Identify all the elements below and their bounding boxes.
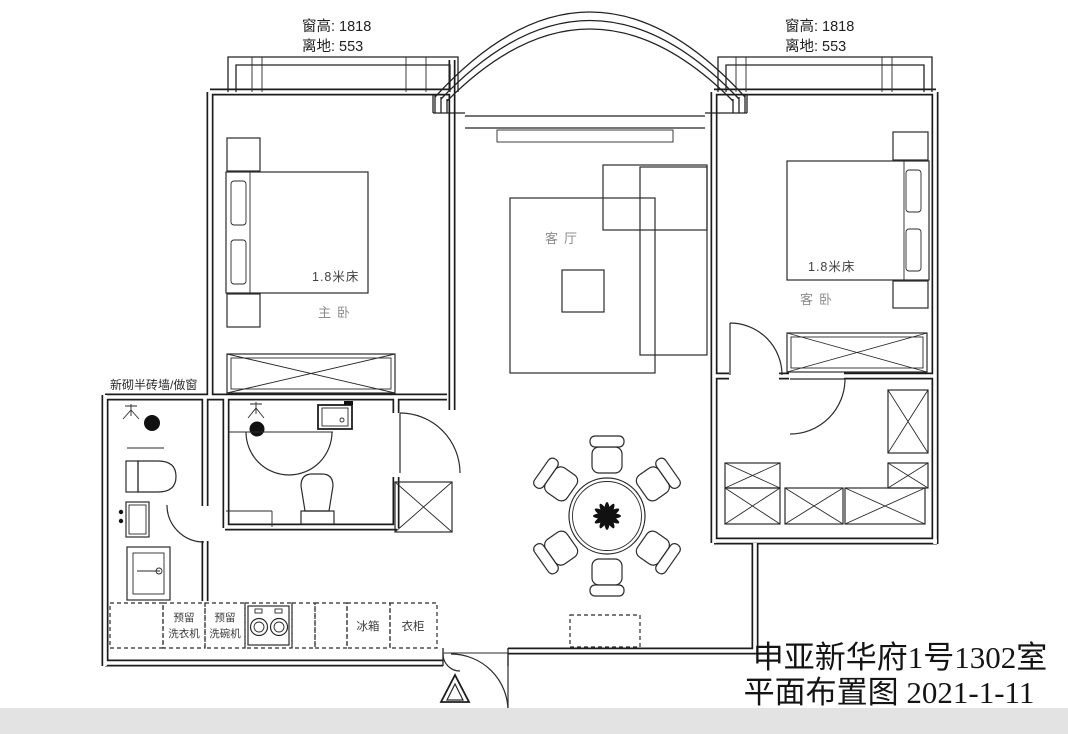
master-pillow — [231, 240, 246, 284]
hallway-cabinet-hatch — [395, 482, 452, 532]
wardrobe-hatch — [888, 390, 928, 453]
utility-toilet — [126, 461, 176, 492]
table-plant — [593, 502, 621, 530]
label-washer-2: 洗衣机 — [168, 627, 200, 640]
living-rug — [510, 198, 655, 373]
label-master-room: 主卧 — [318, 305, 356, 320]
closet-room — [725, 379, 928, 524]
label-washer-1: 预留 — [174, 611, 195, 624]
plan-title-line2: 平面布置图 2021-1-11 — [744, 675, 1035, 710]
sofa — [640, 167, 707, 355]
master-pillow — [231, 181, 246, 225]
label-guest-bed: 1.8米床 — [808, 260, 855, 274]
plan-title-line1: 申亚新华府1号1302室 — [753, 640, 1048, 675]
window-height-note: 窗高: 1818 — [302, 17, 371, 35]
floor-plan-page: 1.8米床 主卧 1.8米床 客卧 客厅 — [0, 0, 1068, 734]
new-wall-note: 新砌半砖墙/做窗 — [110, 377, 197, 392]
living-room-furniture — [510, 165, 707, 373]
floor-drain — [250, 422, 265, 437]
utility-sink — [119, 502, 149, 537]
master-wardrobe-hatch — [227, 354, 395, 393]
mop-basin — [127, 547, 170, 600]
bathroom-sink — [318, 401, 353, 429]
label-living-room: 客厅 — [545, 231, 583, 246]
guest-room-door — [730, 323, 782, 375]
photo-edge-strip — [0, 708, 1068, 734]
shower-curtain — [246, 432, 332, 475]
gas-stove — [248, 606, 289, 645]
counter-cell — [315, 603, 347, 648]
window-height-note: 窗高: 1818 — [785, 17, 854, 35]
floor-drain — [144, 415, 160, 431]
shower-icon — [123, 404, 160, 431]
nightstand — [227, 138, 260, 171]
label-dishwasher-2: 洗碗机 — [209, 627, 241, 640]
bathroom-door — [400, 413, 460, 473]
master-bay-window — [228, 57, 458, 92]
nightstand — [227, 294, 260, 327]
window-note-left: 窗高: 1818 离地: 553 — [302, 17, 371, 55]
entrance-door — [441, 648, 508, 711]
shower-icon — [248, 402, 265, 437]
dining-set — [532, 436, 683, 647]
kitchen-counter: 预留 洗衣机 预留 洗碗机 冰箱 衣柜 — [110, 603, 437, 648]
guest-pillow — [906, 170, 921, 212]
wardrobe-hatch — [785, 488, 843, 524]
wardrobe-hatch — [845, 488, 925, 524]
washer-cell — [163, 603, 205, 648]
guest-wardrobe-hatch — [787, 333, 927, 372]
coffee-table — [562, 270, 604, 312]
wardrobe-hatch — [725, 463, 780, 488]
wardrobe-hatch — [725, 488, 780, 524]
toilet — [301, 474, 334, 524]
utility-door-arc — [167, 505, 204, 542]
window-note-right: 窗高: 1818 离地: 553 — [785, 17, 854, 55]
closet-door — [790, 379, 845, 434]
guest-bay-window — [718, 57, 932, 92]
wardrobe-hatch — [888, 463, 928, 488]
living-room-window — [465, 116, 705, 142]
label-guest-room: 客卧 — [800, 292, 838, 307]
guest-bedroom-furniture — [730, 132, 929, 375]
label-dishwasher-1: 预留 — [215, 611, 236, 624]
counter-cell — [292, 603, 315, 648]
dishwasher-cell — [205, 603, 245, 648]
utility-room — [119, 404, 204, 600]
nightstand — [893, 132, 928, 160]
title-block: 申亚新华府1号1302室 平面布置图 2021-1-11 — [744, 640, 1048, 710]
label-fridge: 冰箱 — [357, 619, 380, 633]
arched-bay-window — [433, 12, 747, 113]
label-master-bed: 1.8米床 — [312, 270, 359, 284]
counter-cell — [110, 603, 163, 648]
stove-cell — [245, 603, 292, 648]
reserved-sideboard — [570, 615, 640, 647]
nightstand — [893, 281, 928, 308]
window-sill-note: 离地: 553 — [785, 38, 846, 55]
walls — [105, 60, 937, 666]
window-sill-note: 离地: 553 — [302, 38, 363, 55]
floor-plan-canvas: 1.8米床 主卧 1.8米床 客卧 客厅 — [0, 0, 1068, 734]
master-bedroom-furniture — [226, 138, 395, 393]
entrance-marker — [441, 675, 469, 702]
label-wardrobe: 衣柜 — [402, 619, 425, 633]
guest-pillow — [906, 229, 921, 271]
